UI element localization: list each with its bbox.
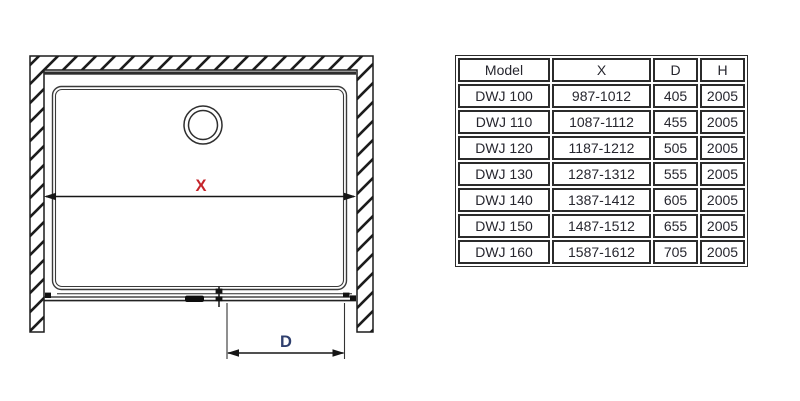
- page: X D M: [0, 0, 800, 401]
- wall-bracket-right: [350, 295, 356, 301]
- dimensions-table: Model X D H DWJ 100 987-1012 405 2005 DW…: [455, 55, 748, 267]
- handle-block-top: [216, 289, 223, 294]
- x-cell: 1587-1612: [552, 240, 651, 264]
- header-x: X: [552, 58, 651, 82]
- x-cell: 1387-1412: [552, 188, 651, 212]
- table-row: DWJ 120 1187-1212 505 2005: [458, 136, 745, 160]
- d-dimension: D: [227, 303, 345, 359]
- wall-bracket-left: [45, 293, 51, 298]
- x-cell: 987-1012: [552, 84, 651, 108]
- d-cell: 705: [653, 240, 698, 264]
- top-profile-bar: [44, 72, 356, 75]
- model-cell: DWJ 140: [458, 188, 550, 212]
- h-cell: 2005: [700, 136, 745, 160]
- d-cell: 605: [653, 188, 698, 212]
- d-cell: 455: [653, 110, 698, 134]
- drain-circle-inner: [189, 111, 218, 140]
- table-row: DWJ 110 1087-1112 455 2005: [458, 110, 745, 134]
- h-cell: 2005: [700, 84, 745, 108]
- model-cell: DWJ 100: [458, 84, 550, 108]
- x-cell: 1487-1512: [552, 214, 651, 238]
- d-cell: 405: [653, 84, 698, 108]
- drain-circle-outer: [184, 106, 222, 144]
- table-row: DWJ 100 987-1012 405 2005: [458, 84, 745, 108]
- h-cell: 2005: [700, 110, 745, 134]
- x-dimension-label: X: [195, 177, 206, 195]
- d-cell: 555: [653, 162, 698, 186]
- h-cell: 2005: [700, 188, 745, 212]
- model-cell: DWJ 150: [458, 214, 550, 238]
- table-row: DWJ 150 1487-1512 655 2005: [458, 214, 745, 238]
- header-model: Model: [458, 58, 550, 82]
- d-cell: 655: [653, 214, 698, 238]
- arrowhead-right: [333, 349, 345, 356]
- x-cell: 1287-1312: [552, 162, 651, 186]
- model-cell: DWJ 160: [458, 240, 550, 264]
- header-h: H: [700, 58, 745, 82]
- x-dimension: X: [44, 177, 356, 200]
- d-dimension-label: D: [280, 333, 292, 351]
- h-cell: 2005: [700, 240, 745, 264]
- arrowhead-right: [344, 193, 356, 200]
- arrowhead-left: [44, 193, 56, 200]
- d-cell: 505: [653, 136, 698, 160]
- shower-door-diagram: X D: [0, 0, 440, 401]
- table-row: DWJ 160 1587-1612 705 2005: [458, 240, 745, 264]
- model-cell: DWJ 120: [458, 136, 550, 160]
- h-cell: 2005: [700, 162, 745, 186]
- header-row: Model X D H: [458, 58, 745, 82]
- model-cell: DWJ 110: [458, 110, 550, 134]
- handle-block-bottom: [216, 296, 223, 301]
- table-row: DWJ 140 1387-1412 605 2005: [458, 188, 745, 212]
- arrowhead-left: [227, 349, 239, 356]
- model-cell: DWJ 130: [458, 162, 550, 186]
- end-cap-right: [343, 293, 350, 298]
- header-d: D: [653, 58, 698, 82]
- h-cell: 2005: [700, 214, 745, 238]
- roller-carriage: [185, 296, 204, 302]
- table-row: DWJ 130 1287-1312 555 2005: [458, 162, 745, 186]
- x-cell: 1187-1212: [552, 136, 651, 160]
- x-cell: 1087-1112: [552, 110, 651, 134]
